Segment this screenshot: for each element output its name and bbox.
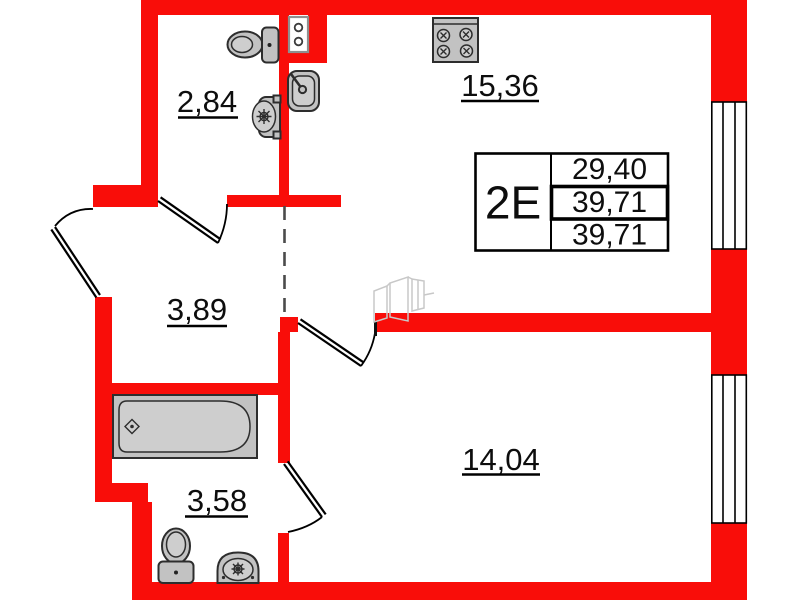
window-icon <box>712 375 747 523</box>
room-area-label-room: 14,04 <box>462 442 540 477</box>
stove-icon <box>433 18 478 62</box>
wall <box>95 297 112 483</box>
floor-plan-drawing: 2,84 15,36 3,89 3,58 14,04 2Е 29,40 39,7… <box>0 0 800 600</box>
unit-type-label: 2Е <box>485 177 541 229</box>
wall <box>278 533 289 582</box>
room-area-label-hallway: 3,89 <box>167 292 227 327</box>
door-jamb <box>374 322 377 337</box>
washbasin-icon <box>253 96 281 139</box>
room-area-label-bathroom: 3,58 <box>187 483 247 518</box>
entrance-door-swing-icon <box>51 209 100 298</box>
toilet-icon <box>159 529 194 584</box>
sink-icon <box>288 71 319 111</box>
wall <box>375 313 711 332</box>
area-value-2: 39,71 <box>572 186 647 219</box>
wall <box>95 483 148 502</box>
window-icon <box>712 102 747 249</box>
wall <box>711 249 747 375</box>
door-swing-icon <box>158 197 227 243</box>
area-table: 2Е 29,40 39,71 39,71 <box>476 153 669 252</box>
room-area-label-wc: 2,84 <box>177 84 237 119</box>
wall <box>141 0 158 190</box>
wall <box>711 0 747 102</box>
wall <box>279 53 327 63</box>
wall <box>112 383 280 395</box>
wall <box>711 523 747 600</box>
wall <box>141 0 747 15</box>
wall <box>280 317 298 332</box>
area-value-3: 39,71 <box>572 219 647 252</box>
door-swing-icon <box>298 319 377 366</box>
area-value-1: 29,40 <box>572 153 647 186</box>
wall <box>278 332 290 463</box>
electrical-panel-icon <box>289 17 308 52</box>
floor-plan: 2,84 15,36 3,89 3,58 14,04 2Е 29,40 39,7… <box>0 0 800 600</box>
wall <box>132 582 747 600</box>
toilet-icon <box>228 28 279 63</box>
sink-icon <box>218 553 259 584</box>
bathtub-icon <box>113 395 257 458</box>
door-swing-icon <box>284 461 326 532</box>
room-area-label-kitchen-living: 15,36 <box>461 68 539 103</box>
wall <box>93 185 158 207</box>
